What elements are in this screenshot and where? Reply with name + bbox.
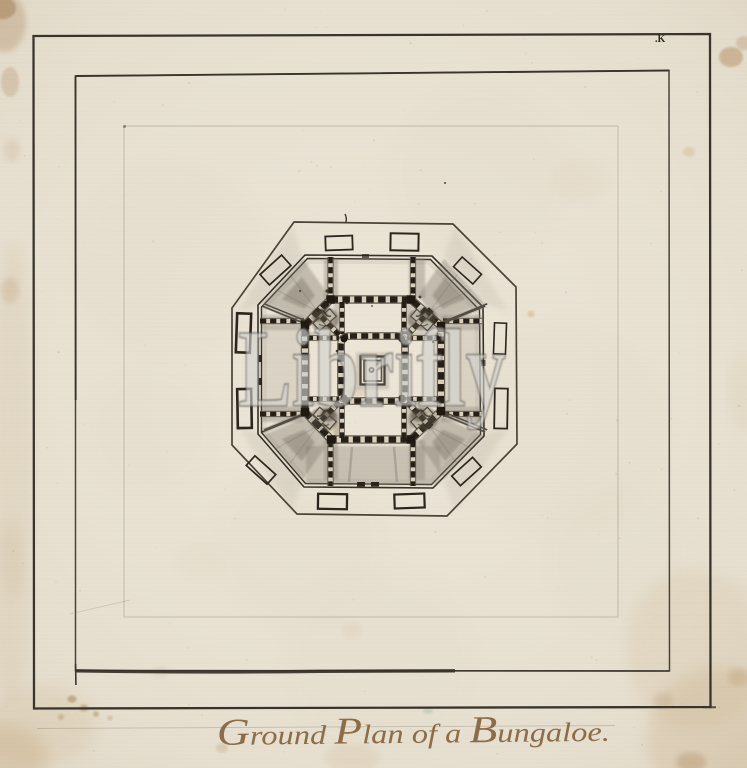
svg-text:Librifly: Librifly: [238, 308, 506, 431]
svg-text:.K: .K: [655, 34, 666, 45]
